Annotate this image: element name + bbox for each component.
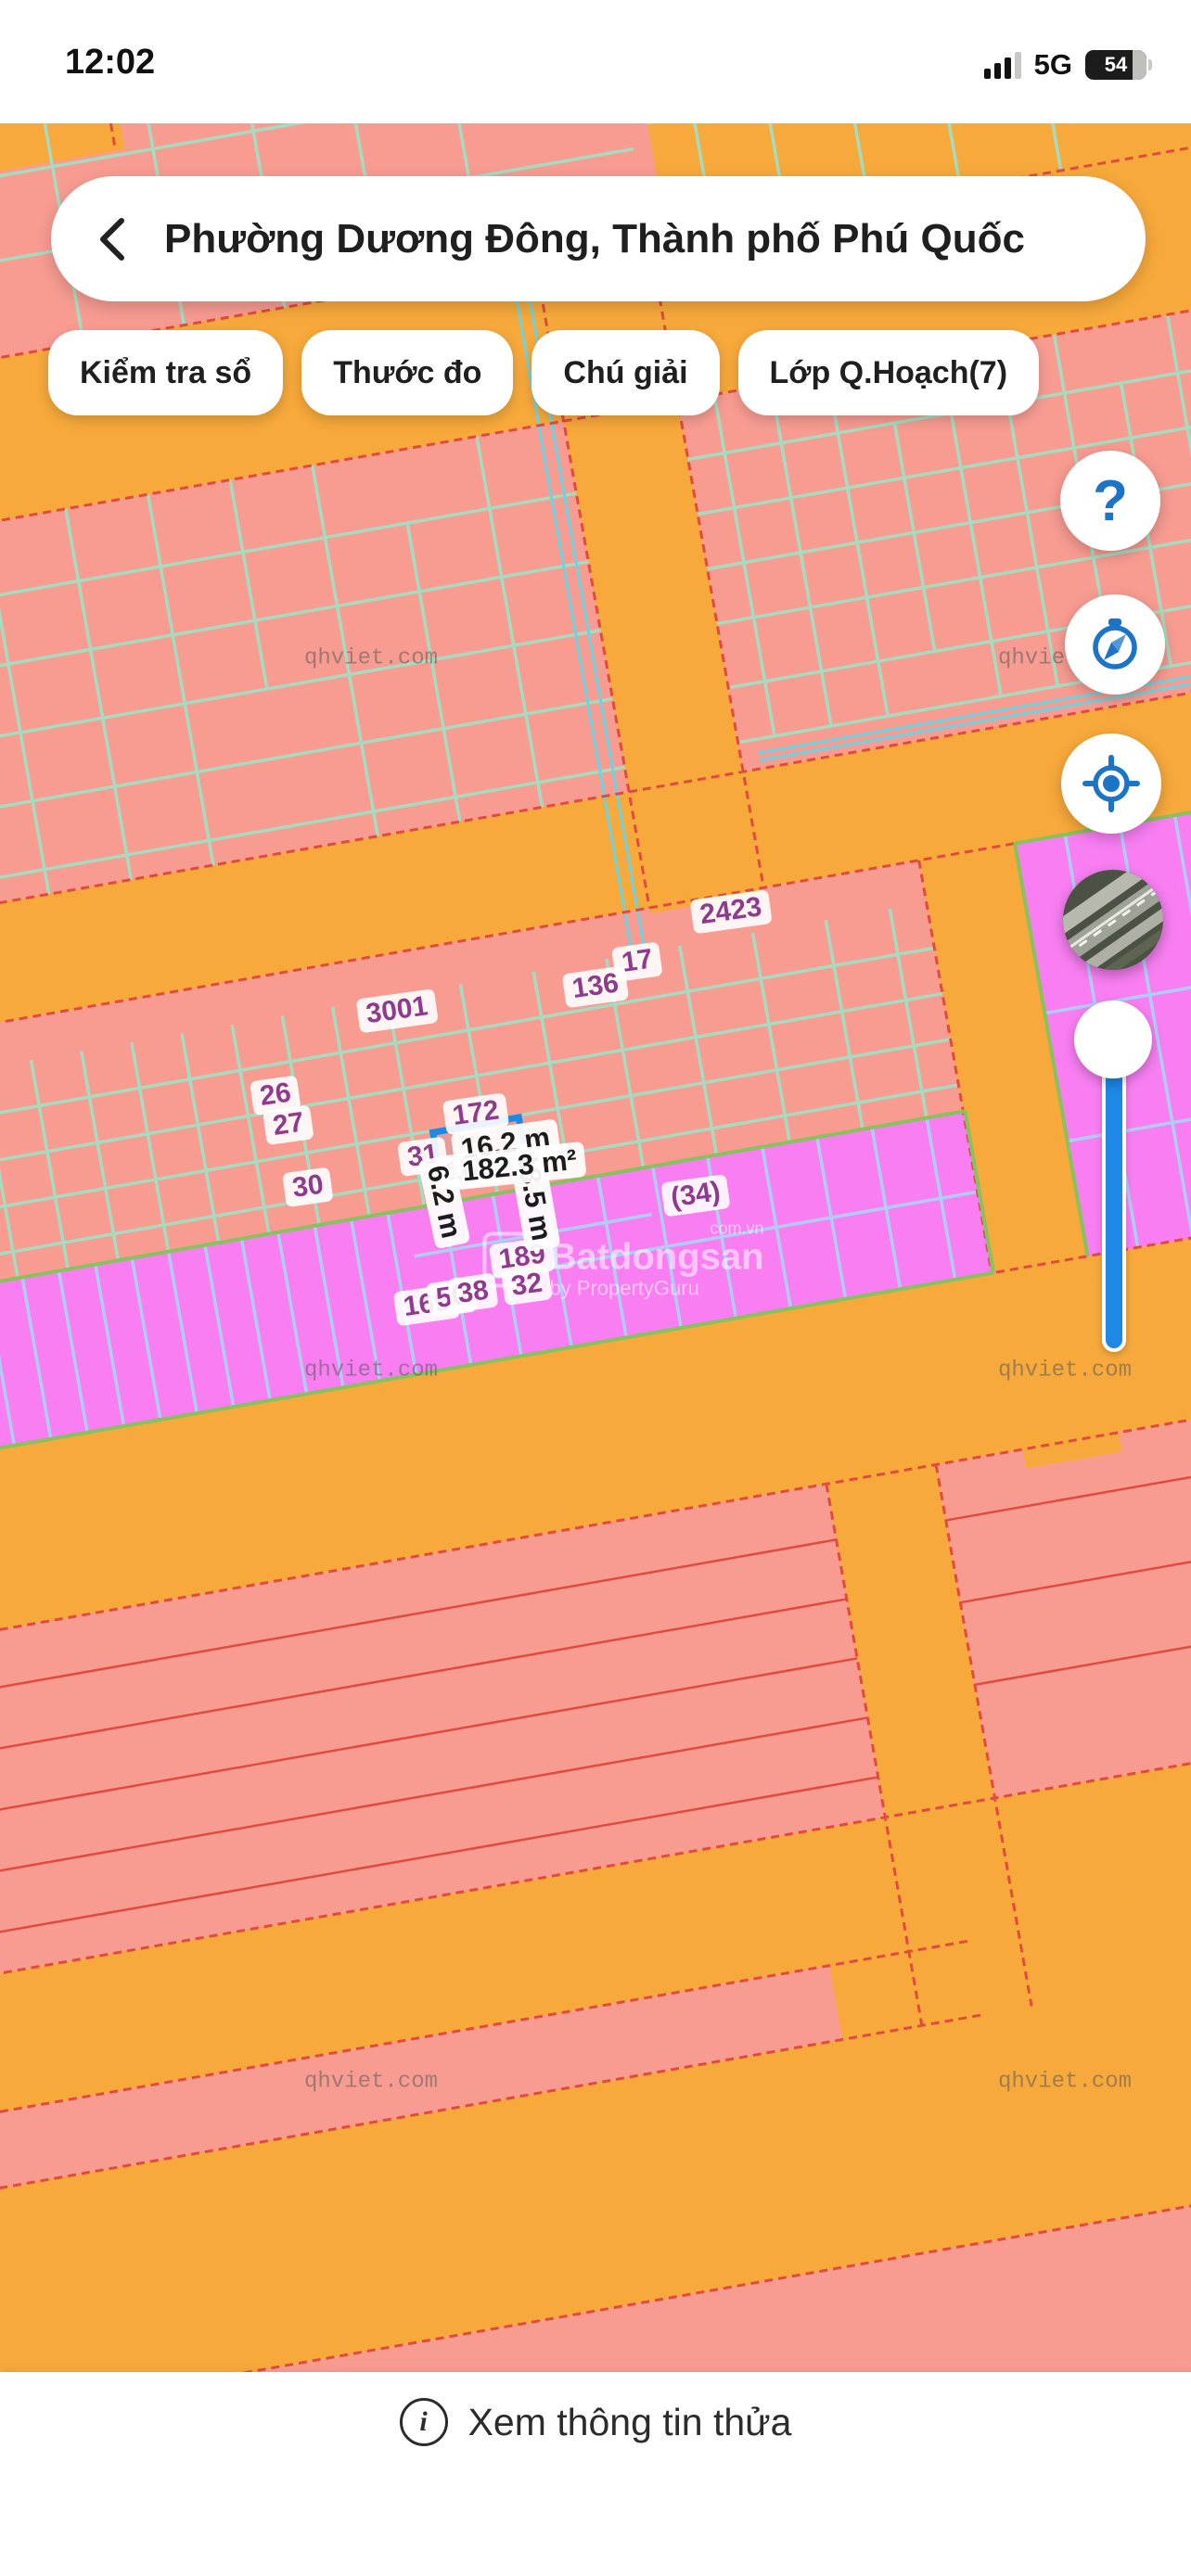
watermark-brand: Batdongsan <box>549 1239 763 1276</box>
status-bar: 12:02 5G 54 <box>0 0 1191 123</box>
toolbar-button-3[interactable]: Lớp Q.Hoạch(7) <box>738 330 1040 415</box>
parcel-label[interactable]: 32 <box>501 1265 553 1305</box>
location-title: Phường Dương Đông, Thành phố Phú Quốc <box>164 216 1025 262</box>
qhviet-watermark: qhviet.com <box>304 1358 438 1384</box>
network-type: 5G <box>1034 48 1072 82</box>
toolbar-button-1[interactable]: Thước đo <box>301 330 513 415</box>
locate-button[interactable] <box>1061 733 1161 834</box>
zoom-slider-track[interactable] <box>1102 1037 1126 1352</box>
toolbar-button-0[interactable]: Kiểm tra sổ <box>48 330 283 415</box>
question-mark-icon: ? <box>1093 468 1128 534</box>
zoom-slider-handle[interactable] <box>1074 1001 1152 1078</box>
help-button[interactable]: ? <box>1060 451 1160 551</box>
battery-icon: 54 <box>1085 50 1152 80</box>
search-bar[interactable]: Phường Dương Đông, Thành phố Phú Quốc <box>51 176 1146 301</box>
bottom-action-bar[interactable]: i Xem thông tin thửa <box>0 2372 1191 2576</box>
compass-icon <box>1085 615 1145 674</box>
back-icon[interactable] <box>94 213 131 265</box>
info-icon: i <box>400 2398 448 2446</box>
parcel-label[interactable]: 27 <box>263 1104 314 1144</box>
satellite-preview-icon <box>1063 870 1163 970</box>
crosshair-location-icon <box>1081 753 1142 814</box>
watermark-domain: com.vn <box>711 1220 764 1237</box>
compass-button[interactable] <box>1065 594 1165 695</box>
qhviet-watermark: qhviet.com <box>304 2070 438 2095</box>
battery-percent: 54 <box>1105 53 1127 77</box>
signal-strength-icon <box>984 51 1021 79</box>
parcel-label[interactable]: 30 <box>282 1167 334 1206</box>
clock: 12:02 <box>65 43 155 83</box>
view-parcel-info-label: Xem thông tin thửa <box>468 2401 792 2444</box>
parcel-label[interactable]: 38 <box>447 1272 499 1312</box>
map-toolbar: Kiểm tra sổThước đoChú giảiLớp Q.Hoạch(7… <box>48 330 1039 415</box>
toolbar-button-2[interactable]: Chú giải <box>531 330 719 415</box>
watermark-byline: by PropertyGuru <box>549 1279 763 1299</box>
map-canvas[interactable]: 242317136300126273031172182(34)189321695… <box>0 123 1191 2372</box>
qhviet-watermark: qhviet.com <box>998 2070 1132 2095</box>
qhviet-watermark: qhviet.com <box>304 646 438 671</box>
qhviet-watermark: qhviet.com <box>998 1358 1132 1384</box>
satellite-layer-thumbnail[interactable] <box>1063 870 1163 970</box>
